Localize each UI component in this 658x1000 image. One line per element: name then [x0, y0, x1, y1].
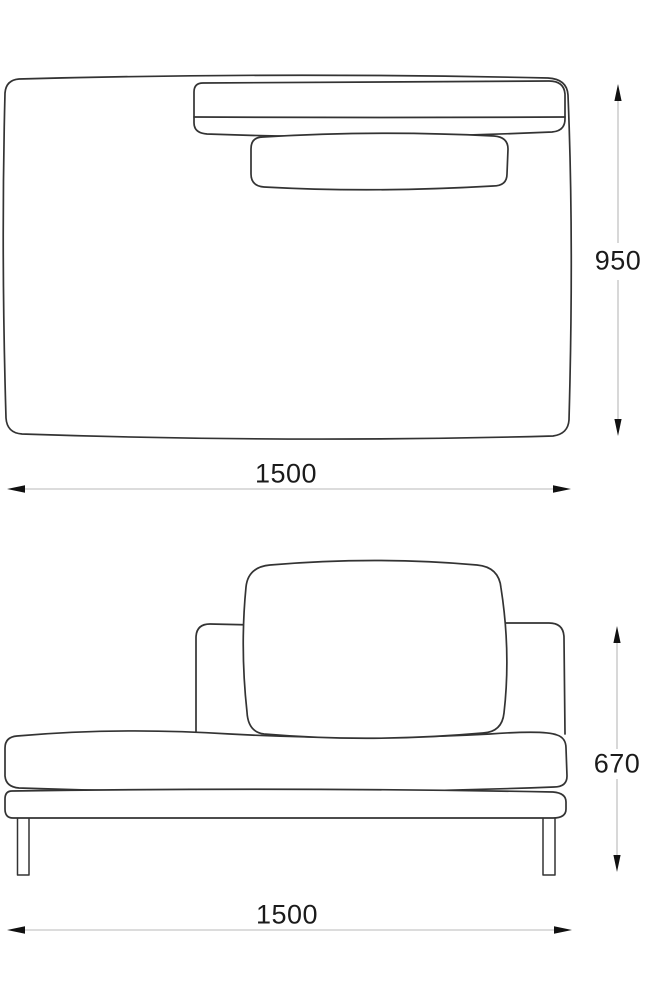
arrow-left-icon — [7, 926, 25, 933]
front-back-cushion-outline — [243, 561, 507, 739]
top-view — [3, 75, 571, 439]
arrow-right-icon — [554, 926, 572, 933]
arrow-down-icon — [614, 419, 621, 436]
front-left-leg — [18, 816, 30, 875]
plan-back-cushion-outline — [251, 133, 508, 190]
arrow-right-icon — [553, 485, 571, 492]
front-view — [5, 561, 567, 876]
front-armrest-outline — [500, 623, 565, 734]
front-base-rail-outline — [5, 789, 566, 818]
plan-body-outline — [3, 75, 571, 439]
front-width-dimension-label: 1500 — [253, 902, 321, 929]
front-seat-cushion-outline — [5, 731, 567, 792]
technical-drawing-page: 950 1500 670 1500 — [0, 0, 658, 1000]
arrow-down-icon — [613, 855, 620, 872]
plan-backrest-seam-line — [194, 117, 565, 118]
arrow-up-icon — [613, 626, 620, 643]
sofa-drawing-svg — [0, 0, 658, 1000]
height-dimension-label: 670 — [591, 751, 644, 778]
plan-backrest-outline — [194, 81, 565, 137]
arrow-up-icon — [614, 84, 621, 101]
front-right-leg — [543, 816, 555, 875]
top-width-dimension-label: 1500 — [252, 461, 320, 488]
depth-dimension-label: 950 — [592, 248, 645, 275]
arrow-left-icon — [7, 485, 25, 492]
